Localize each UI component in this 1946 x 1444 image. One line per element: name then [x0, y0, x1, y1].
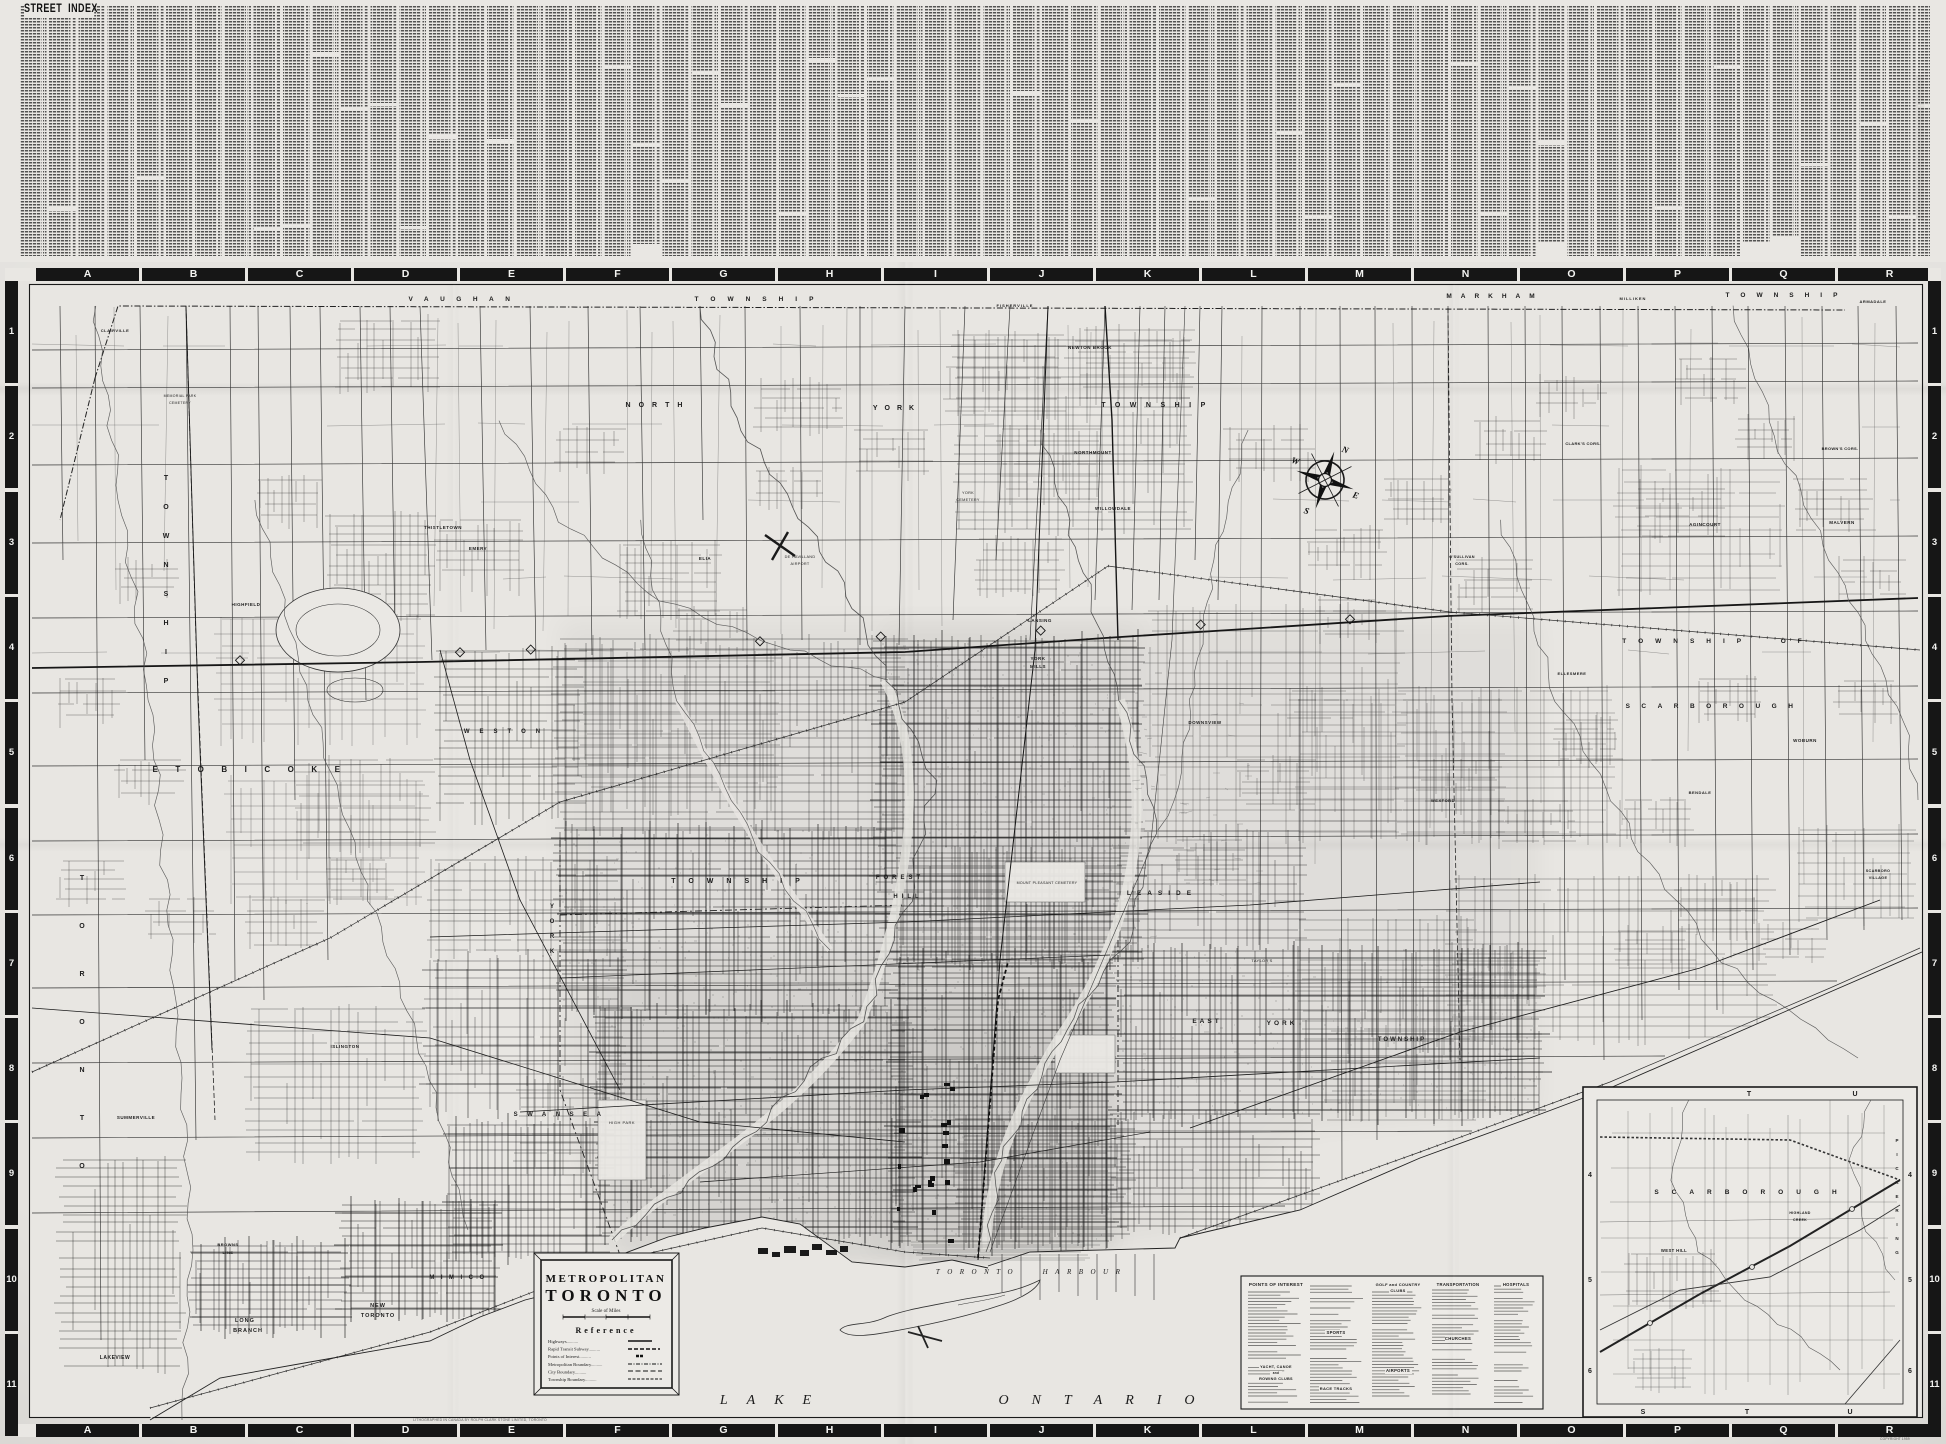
- svg-text:MILLS: MILLS: [1030, 664, 1046, 669]
- svg-text:CEMETERY: CEMETERY: [169, 401, 191, 405]
- svg-text:Highways..........: Highways..........: [548, 1339, 578, 1344]
- svg-text:TORONTO: TORONTO: [545, 1286, 666, 1305]
- svg-text:W: W: [163, 533, 170, 540]
- svg-text:AIRPORT: AIRPORT: [791, 562, 810, 566]
- svg-text:4: 4: [1908, 1172, 1912, 1179]
- svg-text:WOBURN: WOBURN: [1793, 738, 1817, 743]
- svg-text:ROWING CLUBS: ROWING CLUBS: [1259, 1377, 1293, 1381]
- svg-text:MALVERN: MALVERN: [1829, 520, 1854, 525]
- svg-text:CLAIRVILLE: CLAIRVILLE: [101, 328, 129, 333]
- svg-text:SUMMERVILLE: SUMMERVILLE: [117, 1115, 155, 1120]
- svg-text:T: T: [164, 475, 169, 482]
- svg-text:N: N: [79, 1067, 84, 1074]
- svg-text:LINE: LINE: [222, 1250, 233, 1255]
- svg-text:S: S: [1641, 1409, 1646, 1416]
- svg-text:4: 4: [1588, 1172, 1592, 1179]
- svg-text:YACHT, CANOE: YACHT, CANOE: [1260, 1365, 1292, 1369]
- svg-text:BROWN'S CORS.: BROWN'S CORS.: [1822, 446, 1859, 451]
- svg-text:SCARBOROUGH: SCARBOROUGH: [1626, 703, 1805, 710]
- svg-text:TOWNSHIP: TOWNSHIP: [1378, 1037, 1426, 1043]
- svg-text:Reference: Reference: [575, 1326, 636, 1335]
- svg-text:O: O: [163, 504, 169, 511]
- svg-text:CREEK: CREEK: [1793, 1218, 1807, 1222]
- svg-text:TOWNSHIP: TOWNSHIP: [1101, 402, 1215, 409]
- svg-text:I: I: [165, 649, 167, 656]
- svg-text:G: G: [1895, 1250, 1899, 1255]
- svg-text:T: T: [80, 875, 85, 882]
- svg-text:E: E: [1895, 1194, 1898, 1199]
- svg-text:TOWNSHIP: TOWNSHIP: [695, 296, 826, 303]
- svg-text:T: T: [1747, 1091, 1752, 1098]
- svg-text:R: R: [550, 934, 555, 940]
- svg-text:MILLIKEN: MILLIKEN: [1620, 296, 1647, 301]
- svg-text:N: N: [163, 562, 168, 569]
- svg-text:HARBOUR: HARBOUR: [1042, 1268, 1128, 1276]
- svg-text:O: O: [79, 1019, 85, 1026]
- svg-text:P: P: [164, 678, 169, 685]
- svg-text:CLUBS: CLUBS: [1390, 1288, 1405, 1293]
- svg-text:DOWNSVIEW: DOWNSVIEW: [1188, 720, 1222, 725]
- svg-text:POINTS OF INTEREST: POINTS OF INTEREST: [1249, 1282, 1303, 1287]
- svg-text:BENDALE: BENDALE: [1689, 790, 1712, 795]
- svg-text:O: O: [550, 919, 555, 925]
- svg-text:LANSING: LANSING: [1028, 618, 1052, 623]
- svg-text:BROWNS: BROWNS: [217, 1242, 238, 1247]
- svg-text:EAST: EAST: [1192, 1018, 1221, 1025]
- svg-text:WESTON: WESTON: [464, 729, 550, 735]
- svg-text:P: P: [1895, 1138, 1898, 1143]
- svg-text:TORONTO: TORONTO: [936, 1268, 1020, 1276]
- svg-text:U: U: [1847, 1409, 1852, 1416]
- svg-text:ARMADALE: ARMADALE: [1860, 299, 1887, 304]
- svg-text:ONTARIO: ONTARIO: [998, 1393, 1217, 1408]
- svg-text:N: N: [1895, 1236, 1898, 1241]
- svg-text:O: O: [79, 1163, 85, 1170]
- svg-text:METROPOLITAN: METROPOLITAN: [546, 1273, 667, 1285]
- svg-text:RACE TRACKS: RACE TRACKS: [1320, 1386, 1352, 1391]
- svg-text:ELIA: ELIA: [699, 556, 712, 561]
- svg-text:FISHERVILLE: FISHERVILLE: [997, 303, 1034, 308]
- svg-text:Metropolitan Boundary.........: Metropolitan Boundary..........: [548, 1362, 602, 1367]
- svg-text:COPYRIGHT 1959: COPYRIGHT 1959: [1880, 1437, 1910, 1441]
- svg-text:VILLAGE: VILLAGE: [1869, 876, 1888, 880]
- svg-text:NORTH: NORTH: [626, 402, 691, 409]
- svg-text:Points of Interest..........: Points of Interest..........: [548, 1354, 591, 1359]
- svg-text:HIGHFIELD: HIGHFIELD: [232, 602, 261, 607]
- svg-text:O: O: [79, 923, 85, 930]
- svg-text:SCARBOROUGH: SCARBOROUGH: [1654, 1189, 1849, 1196]
- svg-text:NEWTON BROOK: NEWTON BROOK: [1068, 345, 1112, 350]
- svg-text:SWANSEA: SWANSEA: [514, 1112, 611, 1118]
- svg-text:MOUNT PLEASANT CEMETERY: MOUNT PLEASANT CEMETERY: [1017, 881, 1078, 885]
- svg-text:TORONTO: TORONTO: [361, 1313, 395, 1319]
- svg-text:NEW: NEW: [370, 1303, 386, 1309]
- svg-text:City Boundary..........: City Boundary..........: [548, 1369, 586, 1374]
- svg-text:Y: Y: [550, 904, 554, 910]
- svg-text:and: and: [1273, 1371, 1280, 1375]
- svg-text:NORTHMOUNT: NORTHMOUNT: [1074, 450, 1112, 455]
- svg-text:Township Boundary..........: Township Boundary..........: [548, 1377, 597, 1382]
- svg-text:SPORTS: SPORTS: [1326, 1330, 1345, 1335]
- svg-text:AIRPORTS: AIRPORTS: [1386, 1368, 1410, 1373]
- svg-text:LONG: LONG: [235, 1318, 255, 1324]
- svg-text:CEMETERY: CEMETERY: [956, 498, 980, 502]
- svg-text:LAKE: LAKE: [719, 1393, 830, 1408]
- svg-text:YORK: YORK: [1267, 1020, 1298, 1027]
- svg-text:S: S: [164, 591, 169, 598]
- svg-text:WILLOWDALE: WILLOWDALE: [1095, 506, 1131, 511]
- svg-text:5: 5: [1588, 1277, 1592, 1284]
- svg-text:5: 5: [1908, 1277, 1912, 1284]
- svg-text:TOWNSHIP: TOWNSHIP: [1726, 292, 1849, 299]
- svg-text:6: 6: [1588, 1368, 1592, 1375]
- svg-text:U: U: [1852, 1091, 1857, 1098]
- svg-text:YORK: YORK: [1030, 656, 1045, 661]
- svg-text:T: T: [1745, 1409, 1750, 1416]
- svg-text:CLARK'S CORS.: CLARK'S CORS.: [1565, 441, 1600, 446]
- svg-text:WEST HILL: WEST HILL: [1661, 1248, 1687, 1253]
- svg-text:MARKHAM: MARKHAM: [1446, 293, 1543, 300]
- svg-text:I: I: [1896, 1222, 1897, 1227]
- svg-text:HIGH PARK: HIGH PARK: [609, 1120, 635, 1125]
- svg-text:LITHOGRAPHED IN CANADA BY ROLP: LITHOGRAPHED IN CANADA BY ROLPH CLARK ST…: [413, 1418, 547, 1422]
- svg-text:SCARBORO: SCARBORO: [1866, 869, 1891, 873]
- svg-text:6: 6: [1908, 1368, 1912, 1375]
- svg-text:AGINCOURT: AGINCOURT: [1689, 522, 1721, 527]
- svg-text:I: I: [1896, 1152, 1897, 1157]
- svg-text:Scale of Miles: Scale of Miles: [592, 1309, 621, 1314]
- svg-text:YORK: YORK: [962, 491, 974, 495]
- svg-text:EMERY: EMERY: [469, 546, 487, 551]
- svg-text:H: H: [163, 620, 168, 627]
- svg-text:BRANCH: BRANCH: [233, 1328, 263, 1334]
- svg-text:DE HAVILLAND: DE HAVILLAND: [785, 555, 816, 559]
- svg-text:HIGHLAND: HIGHLAND: [1789, 1211, 1810, 1215]
- svg-text:R: R: [79, 971, 84, 978]
- svg-text:HOSPITALS: HOSPITALS: [1503, 1282, 1529, 1287]
- svg-text:ELLESMERE: ELLESMERE: [1558, 671, 1587, 676]
- svg-text:GOLF and COUNTRY: GOLF and COUNTRY: [1376, 1282, 1421, 1287]
- svg-text:LAKEVIEW: LAKEVIEW: [100, 1355, 130, 1361]
- svg-text:ISLINGTON: ISLINGTON: [331, 1044, 360, 1049]
- svg-text:ETOBICOKE: ETOBICOKE: [153, 765, 358, 774]
- svg-text:TOWNSHIP: TOWNSHIP: [671, 878, 813, 885]
- svg-text:LEASIDE: LEASIDE: [1127, 890, 1197, 897]
- svg-text:K: K: [550, 949, 555, 955]
- svg-text:T: T: [80, 1115, 85, 1122]
- svg-text:VAUGHAN: VAUGHAN: [409, 296, 522, 303]
- svg-text:TAYLOR'S: TAYLOR'S: [1251, 958, 1272, 963]
- svg-text:TOWNSHIP OF: TOWNSHIP OF: [1622, 638, 1814, 645]
- svg-text:Rapid Transit Subway..........: Rapid Transit Subway..........: [548, 1347, 600, 1352]
